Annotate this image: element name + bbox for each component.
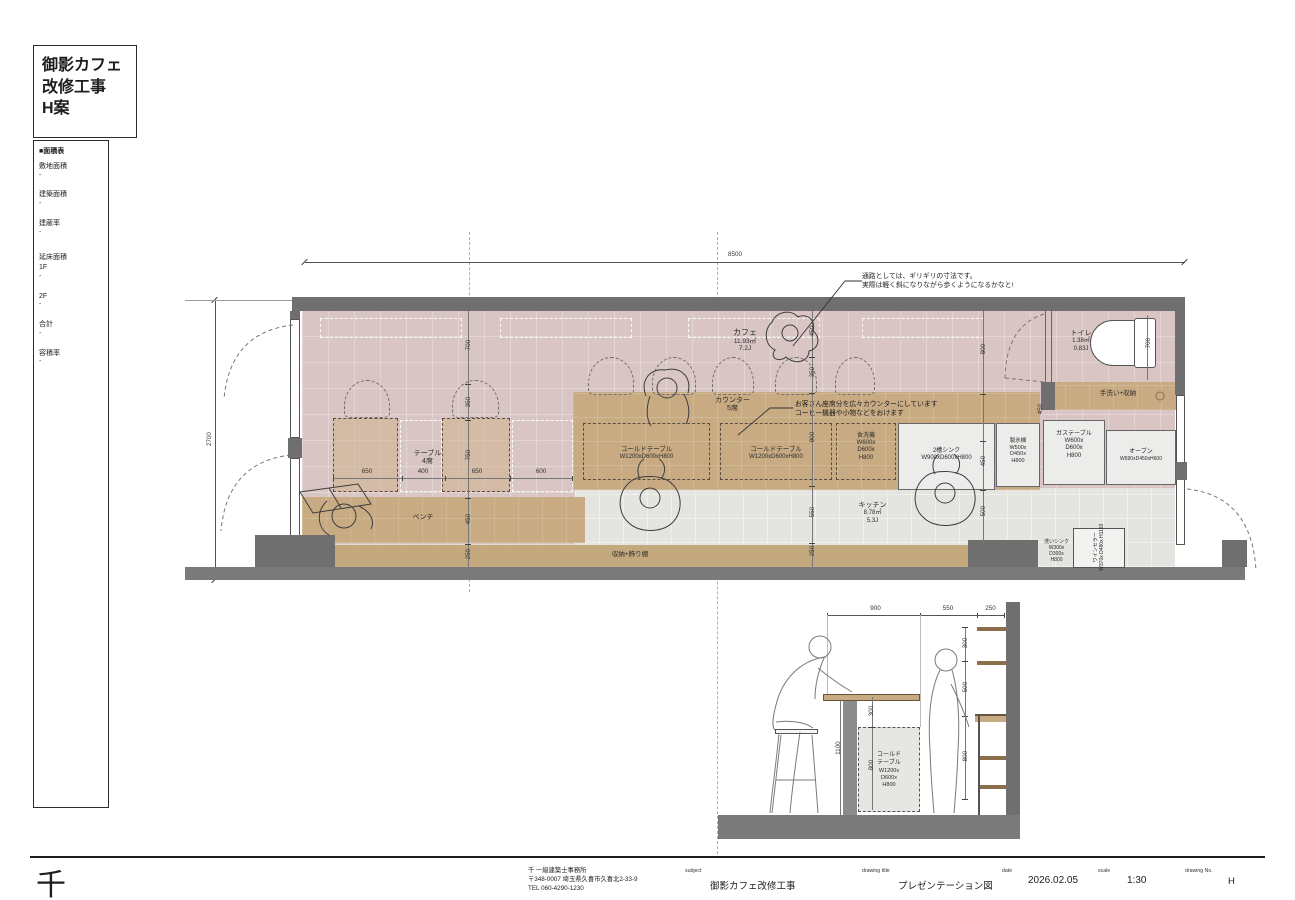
- toilet-partition: [1045, 310, 1046, 382]
- toilet-partition: [1051, 310, 1052, 382]
- dim-tick: [977, 613, 978, 618]
- extension-line: [827, 615, 828, 694]
- office-info: 千 一級建築士事務所 〒348-0007 埼玉県久喜市久喜北2-33-9 TEL…: [528, 866, 638, 893]
- dim-450: 450: [466, 508, 472, 530]
- section-shelf: [977, 661, 1006, 665]
- dim-tick: [962, 627, 968, 628]
- section-dim-line: [827, 615, 1005, 616]
- oven-label: オーブン: [1108, 449, 1174, 456]
- date-value: 2026.02.05: [1028, 875, 1078, 886]
- area-row-label: 敷地面積: [39, 163, 103, 172]
- dim-tick: [572, 476, 573, 481]
- dim-tick: [445, 476, 446, 481]
- area-row: 建蔽率 -: [39, 220, 103, 238]
- storage-shelf-label: 収納+飾り棚: [592, 551, 668, 559]
- dim-tick: [1004, 613, 1005, 618]
- dim-650: 650: [462, 469, 492, 475]
- dim-700: 700: [466, 334, 472, 356]
- dim-350: 350: [810, 361, 816, 383]
- wash-sink: 洗いシンク W300x D300x H800: [1040, 539, 1073, 563]
- dim-tick: [465, 420, 471, 421]
- section-stool-seat: [775, 729, 818, 734]
- drawing-no-label: drawing No.: [1185, 868, 1213, 874]
- ice-maker-label: 製氷機: [998, 438, 1038, 445]
- dim-250: 250: [810, 540, 816, 562]
- office-logo: 千: [36, 860, 66, 900]
- section-shelf: [979, 756, 1006, 760]
- table-seats: 4席: [400, 458, 455, 466]
- area-row-value: -: [39, 200, 103, 209]
- date-label: date: [1002, 868, 1012, 874]
- dim-250: 250: [977, 606, 1004, 612]
- area-row-value: -: [39, 273, 103, 282]
- two-basin-sink-label: 2槽シンク: [900, 448, 993, 455]
- dim-total-width: 8500: [700, 252, 770, 258]
- section-counter-post: [843, 701, 857, 815]
- dim-tick: [333, 476, 334, 481]
- dim-300: 300: [869, 701, 875, 721]
- wine-cellar: ワインセラー W370x D480x H1160: [1073, 528, 1125, 568]
- wall-top: [292, 297, 1185, 311]
- dim-tick: [465, 498, 471, 499]
- kitchen-base-block: [968, 540, 1038, 567]
- bench-label: ベンチ: [398, 514, 448, 522]
- area-table-header: ■面積表: [39, 148, 103, 157]
- dimension-line-left: [215, 300, 216, 580]
- bench-foundation-block: [255, 535, 335, 567]
- wine-cellar-label: ワインセラー W370x D480x H1160: [1093, 512, 1106, 582]
- area-row: 建築面積 -: [39, 191, 103, 209]
- gas-table-size: W600x: [1045, 438, 1103, 445]
- subject-label: subject: [685, 868, 701, 874]
- dim-350: 350: [466, 391, 472, 413]
- dim-tick: [962, 661, 968, 662]
- cafe-area: 11.93㎡: [705, 338, 785, 346]
- cold-table-1: コールドテーブル W1200xD600xH800: [583, 423, 710, 480]
- kitchen-tatami: 5.3J: [845, 518, 900, 525]
- ice-maker-size: H800: [998, 458, 1038, 465]
- drawing-title-label: drawing title: [862, 868, 890, 874]
- area-row: 2F -: [39, 293, 103, 311]
- area-table: ■面積表 敷地面積 - 建築面積 - 建蔽率 - 延床面積 1F - 2F - …: [33, 140, 109, 808]
- dim-900: 900: [810, 426, 816, 448]
- counter-annotation-line1: お客さん座席分を広々カウンターにしています: [795, 400, 938, 409]
- ceiling-dash: [500, 318, 632, 338]
- area-row-label: 1F: [39, 264, 103, 273]
- project-title-line3: H案: [42, 98, 128, 120]
- dim-600: 600: [526, 469, 556, 475]
- counter-seats: 5席: [700, 405, 765, 413]
- dim-tick: [809, 486, 815, 487]
- dim-650: 650: [352, 469, 382, 475]
- cafe-tatami: 7.2J: [705, 345, 785, 353]
- wash-sink-size: H800: [1040, 557, 1073, 563]
- dim-chain: [333, 478, 573, 479]
- titlebar-rule: [30, 856, 1265, 858]
- office-address: 〒348-0007 埼玉県久喜市久喜北2-33-9: [528, 875, 638, 884]
- section-shelf: [979, 785, 1006, 789]
- area-row-label: 容積率: [39, 350, 103, 359]
- dim-tick: [1181, 259, 1187, 265]
- dim-tick: [402, 476, 403, 481]
- dim-tick: [962, 799, 968, 800]
- kitchen-label: キッチン 8.78㎡ 5.3J: [845, 502, 900, 525]
- walkway-annotation-line1: 通路としては、ギリギリの寸法です。: [862, 272, 1013, 281]
- wall-left-stub: [290, 311, 300, 319]
- dim-tick: [510, 476, 511, 481]
- counter-annotation-line2: コーヒー機器や小物などをおけます: [795, 409, 938, 418]
- dim-700: 700: [1146, 332, 1152, 354]
- project-title-block: 御影カフェ 改修工事 H案: [33, 45, 137, 138]
- door-swing-left-lower: [221, 455, 291, 531]
- dim-total-height: 2700: [207, 425, 213, 453]
- cafe-label: カフェ 11.93㎡ 7.2J: [705, 328, 785, 353]
- section-person-seated-back: [773, 657, 826, 730]
- project-title-line2: 改修工事: [42, 77, 128, 99]
- scale-value: 1:30: [1127, 875, 1146, 886]
- wall-right-upper: [1175, 311, 1185, 395]
- dishwasher-size: H800: [838, 455, 894, 462]
- area-row-value: -: [39, 172, 103, 181]
- dim-800: 800: [869, 755, 875, 775]
- dim-900: 900: [848, 606, 903, 612]
- dim-1100: 1100: [836, 734, 842, 762]
- oven-size: W690xD450xH600: [1108, 456, 1174, 462]
- handwash-label: 手洗い+収納: [1080, 390, 1156, 398]
- toilet-area: 1.38㎡: [1058, 338, 1104, 345]
- area-row: 敷地面積 -: [39, 163, 103, 181]
- section-person-standing-head: [935, 649, 957, 671]
- area-row-value: -: [39, 301, 103, 310]
- dim-tick: [980, 394, 986, 395]
- dim-500: 500: [963, 677, 969, 697]
- counter-annotation: お客さん座席分を広々カウンターにしています コーヒー機器や小物などをおけます: [795, 400, 938, 418]
- window-left-upper: [290, 319, 300, 438]
- wall-left-mullion: [288, 438, 302, 458]
- walkway-annotation-line2: 実際は軽く斜になりながら歩くようになるかなと!: [862, 281, 1013, 290]
- wine-cellar-size: W370x D480x H1160: [1099, 512, 1105, 582]
- section-shelf-post: [978, 714, 980, 815]
- section-shelf: [977, 627, 1006, 631]
- office-tel: TEL 060-4290-1230: [528, 884, 638, 893]
- dim-750: 750: [466, 444, 472, 466]
- dim-450: 450: [1038, 398, 1044, 420]
- area-row-label: 建蔽率: [39, 220, 103, 229]
- section-person-standing-front: [929, 670, 940, 813]
- dim-400: 400: [408, 469, 438, 475]
- area-row: 合計 -: [39, 321, 103, 339]
- subject-value: 御影カフェ改修工事: [710, 878, 796, 892]
- ice-maker-size: D450x: [998, 451, 1038, 458]
- ceiling-dash: [862, 318, 984, 338]
- walkway-annotation: 通路としては、ギリギリの寸法です。 実際は軽く斜になりながら歩くようになるかなと…: [862, 272, 1013, 290]
- aisle-dash: [512, 420, 573, 492]
- dimension-line-top: [305, 262, 1185, 263]
- gas-table: ガステーブル W600x D600x H800: [1043, 420, 1105, 485]
- dim-tick: [980, 441, 986, 442]
- section-cold-table-size: D600x: [859, 775, 919, 782]
- dim-tick: [962, 716, 968, 717]
- scale-label: scale: [1098, 868, 1110, 874]
- area-row-label: 2F: [39, 293, 103, 302]
- extension-line: [185, 300, 292, 301]
- section-person-seated-chest: [815, 658, 824, 699]
- area-row: 容積率 -: [39, 350, 103, 368]
- dim-450: 450: [810, 320, 816, 342]
- area-row-value: -: [39, 358, 103, 367]
- drawing-sheet: 御影カフェ 改修工事 H案 ■面積表 敷地面積 - 建築面積 - 建蔽率 - 延…: [0, 0, 1295, 900]
- right-base-block: [1222, 540, 1247, 567]
- dishwasher-size: D600x: [838, 447, 894, 454]
- area-row: 1F -: [39, 264, 103, 282]
- ice-maker: 製氷機 W500x D450x H800: [996, 423, 1040, 487]
- section-stool-legs: [772, 735, 818, 813]
- area-row-label: 建築面積: [39, 191, 103, 200]
- dim-tick: [980, 490, 986, 491]
- area-row: 延床面積: [39, 254, 103, 263]
- dim-450: 450: [981, 450, 987, 472]
- section-person-seated-thigh: [776, 721, 813, 728]
- cafe-name: カフェ: [705, 328, 785, 338]
- section-cold-table-size: H800: [859, 782, 919, 789]
- section-person-standing-back: [952, 670, 959, 813]
- area-row-value: -: [39, 330, 103, 339]
- cold-table-1-label: コールドテーブル: [588, 446, 705, 454]
- office-name: 千 一級建築士事務所: [528, 866, 638, 875]
- dim-250: 250: [466, 543, 472, 565]
- area-row-label: 合計: [39, 321, 103, 330]
- dim-tick: [869, 727, 875, 728]
- dim-300: 300: [963, 633, 969, 653]
- gas-table-size: D600x: [1045, 445, 1103, 452]
- dim-800: 800: [981, 338, 987, 360]
- dishwasher-label: 食洗機: [838, 433, 894, 440]
- counter-label: カウンター 5席: [700, 397, 765, 414]
- ice-maker-size: W500x: [998, 445, 1038, 452]
- dim-550: 550: [933, 606, 963, 612]
- ceiling-dash: [320, 318, 462, 338]
- toilet-tatami: 0.83J: [1058, 346, 1104, 353]
- toilet-label: トイレ 1.38㎡ 0.83J: [1058, 330, 1104, 353]
- gas-table-size: H800: [1045, 453, 1103, 460]
- extension-line: [920, 615, 921, 727]
- section-person-seated-legs: [770, 732, 800, 813]
- gas-table-label: ガステーブル: [1045, 431, 1103, 438]
- area-row-value: -: [39, 229, 103, 238]
- section-right-wall: [1006, 602, 1020, 815]
- table-label: テーブル 4席: [400, 450, 455, 467]
- section-floor-slab: [718, 815, 1020, 839]
- kitchen-area: 8.78㎡: [845, 510, 900, 517]
- cold-table-2-size: W1200xD600xH800: [723, 454, 829, 461]
- dim-tick: [809, 393, 815, 394]
- dim-tick: [465, 384, 471, 385]
- cafe-table-1: [333, 418, 398, 492]
- project-title-line1: 御影カフェ: [42, 55, 128, 77]
- dim-tick: [809, 357, 815, 358]
- drawing-no-value: H: [1228, 876, 1235, 887]
- area-row-label: 延床面積: [39, 254, 103, 263]
- window-left-lower: [290, 458, 300, 538]
- section-person-seated-arm: [818, 668, 852, 692]
- oven: オーブン W690xD450xH600: [1106, 430, 1176, 485]
- drawing-title-value: プレゼンテーション図: [898, 878, 993, 892]
- dishwasher-size: W600x: [838, 440, 894, 447]
- door-swing-left-upper: [224, 325, 293, 399]
- cold-table-1-size: W1200xD600xH800: [588, 454, 705, 461]
- dim-550: 550: [810, 501, 816, 523]
- dim-500: 500: [981, 500, 987, 522]
- floor-slab: [185, 567, 1245, 580]
- dishwasher: 食洗機 W600x D600x H800: [836, 423, 896, 480]
- dim-800: 800: [963, 746, 969, 766]
